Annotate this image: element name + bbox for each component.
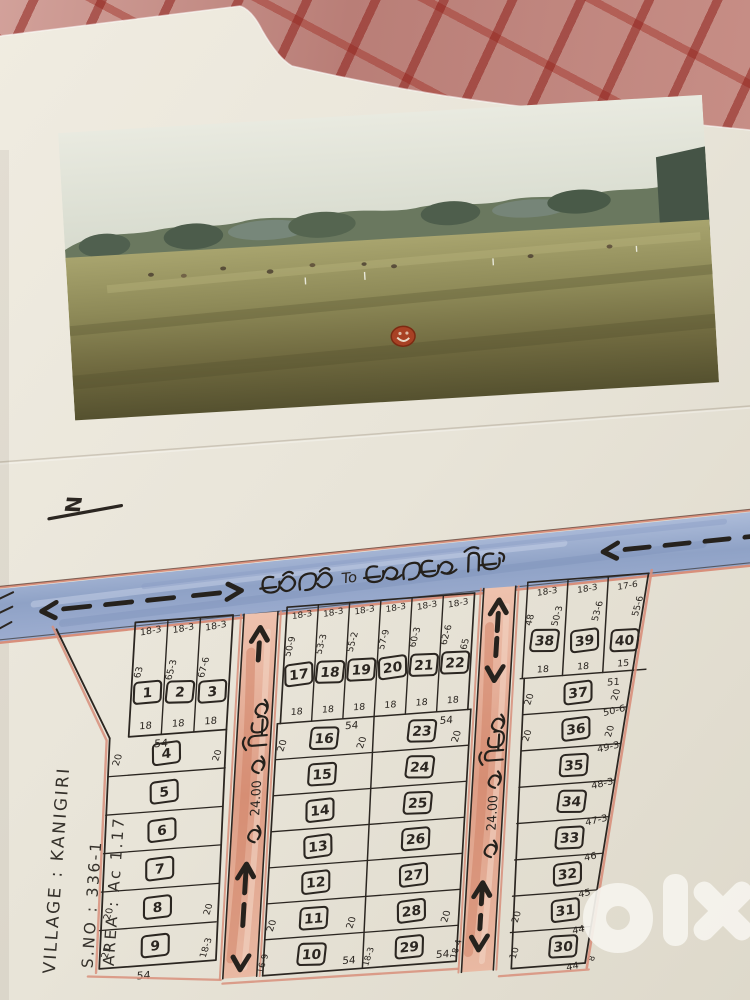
plot-36: 36 <box>562 717 589 742</box>
dim-label: 63 <box>132 666 146 679</box>
plot-3: 3 <box>198 680 226 703</box>
dim-label: 51 <box>607 677 620 689</box>
road-dash <box>258 643 259 660</box>
plot-13: 13 <box>304 834 331 859</box>
dim-label: 20 <box>211 749 224 762</box>
plan-line <box>280 607 287 723</box>
plot-9: 9 <box>142 933 169 957</box>
plot-34: 34 <box>557 791 587 812</box>
plot-10: 10 <box>297 943 326 965</box>
plot-number: 2 <box>174 685 185 701</box>
plot-number: 36 <box>566 721 586 739</box>
plot-number: 21 <box>413 658 434 674</box>
road-label-to: To <box>340 569 357 587</box>
plot-26: 26 <box>402 827 430 851</box>
dim-label: 20 <box>265 919 280 933</box>
plot-21: 21 <box>409 654 438 676</box>
road-dash <box>64 606 90 609</box>
plan-line <box>603 576 609 672</box>
plot-number: 23 <box>411 724 432 740</box>
plot-40: 40 <box>610 629 639 652</box>
dim-label: 20 <box>344 916 359 930</box>
north-letter: N <box>59 495 86 513</box>
plot-22: 22 <box>441 651 470 673</box>
plot-11: 11 <box>300 907 328 930</box>
road-dash <box>243 904 244 925</box>
plot-33: 33 <box>555 826 584 849</box>
road-dash <box>705 539 729 541</box>
dim-label: 20 <box>275 739 290 753</box>
dim-label: 47-3 <box>585 813 608 829</box>
plan-line <box>269 853 462 868</box>
plan-line <box>522 582 528 678</box>
plot-number: 28 <box>402 903 422 921</box>
plot-39: 39 <box>571 628 598 652</box>
boundary-stone-marker <box>391 326 416 347</box>
plot-25: 25 <box>403 792 432 814</box>
plot-17: 17 <box>285 662 312 687</box>
plot-number: 14 <box>310 802 330 820</box>
plot-28: 28 <box>398 898 425 923</box>
plan-line <box>359 716 377 968</box>
dim-label: 17-6 <box>617 580 638 593</box>
dim-label: 48 <box>524 614 537 627</box>
plan-line <box>271 817 464 832</box>
plot-number: 7 <box>155 861 165 878</box>
plot-16: 16 <box>310 727 339 749</box>
plot-37: 37 <box>565 680 592 704</box>
olx-o-glyph <box>595 895 642 942</box>
plot-number: 13 <box>308 838 328 856</box>
dim-label: 54 <box>154 737 169 751</box>
dim-label: 50-3 <box>550 605 565 627</box>
plot-14: 14 <box>306 798 333 822</box>
left-edge-shadow <box>0 150 9 1000</box>
road-dash <box>481 886 482 903</box>
plot-number: 16 <box>314 731 335 747</box>
dim-label: 18 <box>536 664 549 676</box>
dim-label: 49-3 <box>597 740 620 756</box>
dim-label: 54 <box>345 719 359 732</box>
plot-number: 38 <box>534 633 555 649</box>
dim-label: 54 <box>136 969 151 983</box>
road-width-value: 24.00 <box>484 794 501 831</box>
road-dash <box>665 543 689 545</box>
olx-l-glyph <box>663 874 688 946</box>
plot-number: 17 <box>289 666 309 684</box>
dim-label: 18 <box>384 699 397 711</box>
plan-line <box>267 889 460 904</box>
plot-number: 15 <box>312 767 332 784</box>
plot-23: 23 <box>407 720 436 742</box>
plot-number: 18 <box>319 665 340 681</box>
dim-label: 18 <box>290 706 303 718</box>
dim-label: 18-3 <box>417 600 438 613</box>
dim-label: 20 <box>111 753 126 767</box>
olx-watermark <box>560 858 750 983</box>
dim-label: 18 <box>139 721 152 733</box>
plot-27: 27 <box>400 863 427 888</box>
plot-number: 25 <box>407 795 428 811</box>
plot-number: 35 <box>563 758 584 775</box>
road-dash <box>106 602 132 605</box>
dim-label: 54 <box>436 948 450 961</box>
plan-line <box>562 579 568 675</box>
plot-number: 33 <box>559 830 580 847</box>
dim-label: 20 <box>603 725 617 738</box>
plot-number: 22 <box>445 655 466 672</box>
plot-15: 15 <box>308 763 336 786</box>
plot-5: 5 <box>151 779 178 804</box>
plot-29: 29 <box>396 935 424 959</box>
plot-7: 7 <box>146 856 173 880</box>
plot-35: 35 <box>560 754 588 777</box>
plot-12: 12 <box>302 870 329 894</box>
dim-label: 20 <box>439 910 454 924</box>
plot-number: 8 <box>153 900 163 917</box>
dim-label: 50-6 <box>603 703 626 719</box>
plan-line <box>468 593 475 709</box>
plot-number: 1 <box>142 685 152 702</box>
plot-number: 5 <box>159 784 169 801</box>
dim-label: 20 <box>522 693 536 706</box>
dim-label: 20 <box>520 729 534 742</box>
dim-label: 18-3 <box>537 586 558 599</box>
plot-number: 27 <box>404 867 424 885</box>
plot-24: 24 <box>405 756 434 777</box>
plot-number: 19 <box>351 662 372 679</box>
dim-label: 18 <box>322 704 335 716</box>
dim-label: 18-3 <box>448 597 469 610</box>
dim-label: 18 <box>353 702 366 714</box>
road-dash <box>480 915 481 928</box>
plot-1: 1 <box>134 681 162 705</box>
dim-label: 54 <box>439 714 453 727</box>
plan-line <box>374 600 381 716</box>
plot-8: 8 <box>144 895 171 919</box>
plot-number: 24 <box>409 760 430 776</box>
dim-label: 20 <box>510 910 524 923</box>
dim-label: 18 <box>171 718 184 730</box>
land-photo <box>58 94 719 422</box>
dim-label: 18 <box>415 697 428 709</box>
plot-20: 20 <box>379 655 406 680</box>
plot-number: 34 <box>561 794 582 810</box>
road-dash <box>194 593 220 596</box>
dim-label: 20 <box>609 688 623 701</box>
plot-number: 40 <box>614 633 635 650</box>
plot-number: 39 <box>575 632 594 650</box>
dim-label: 65 <box>459 638 472 651</box>
dim-label: 18 <box>446 695 459 707</box>
plan-line <box>265 925 458 940</box>
road-dash <box>245 868 246 893</box>
plot-number: 20 <box>383 659 403 677</box>
road-width-value: 24.00 <box>248 780 265 817</box>
plot-2: 2 <box>165 681 194 703</box>
road-dash <box>625 547 649 549</box>
dim-label: 54 <box>342 954 356 967</box>
dim-label: 18-3 <box>199 937 215 959</box>
road-dash <box>496 638 497 655</box>
plot-number: 37 <box>568 684 588 702</box>
plot-number: 9 <box>150 938 160 955</box>
dim-label: 48-3 <box>591 776 614 792</box>
dim-label: 18 <box>204 716 217 728</box>
plot-number: 3 <box>207 684 218 700</box>
dim-label: 18-3 <box>292 609 313 622</box>
dim-label: 18 <box>577 661 590 673</box>
plot-18: 18 <box>316 661 345 683</box>
plot-number: 29 <box>399 939 419 957</box>
listing-photo-root: To24.0024.0018-36311818-365-321818-367-6… <box>0 0 750 1000</box>
dim-label: 20 <box>450 730 465 744</box>
dim-label: 15 <box>617 658 630 670</box>
plot-38: 38 <box>530 630 560 651</box>
plan-line <box>108 768 225 777</box>
plot-number: 11 <box>303 911 323 928</box>
dim-label: 20 <box>202 903 215 916</box>
plot-number: 6 <box>157 823 167 840</box>
plot-19: 19 <box>347 658 376 681</box>
dim-label: 53-6 <box>591 600 606 622</box>
road-dash <box>745 535 750 537</box>
plot-number: 12 <box>306 874 326 892</box>
plot-number: 26 <box>406 831 426 848</box>
road-dash <box>497 613 498 630</box>
olx-x-glyph <box>689 877 750 944</box>
road-dash <box>148 598 174 601</box>
dim-label: 20 <box>355 736 370 750</box>
dim-label: 10 <box>508 946 522 959</box>
block-outline <box>263 961 456 976</box>
plot-6: 6 <box>148 818 175 843</box>
dim-label: 18-3 <box>577 583 598 596</box>
plot-number: 10 <box>301 947 322 963</box>
